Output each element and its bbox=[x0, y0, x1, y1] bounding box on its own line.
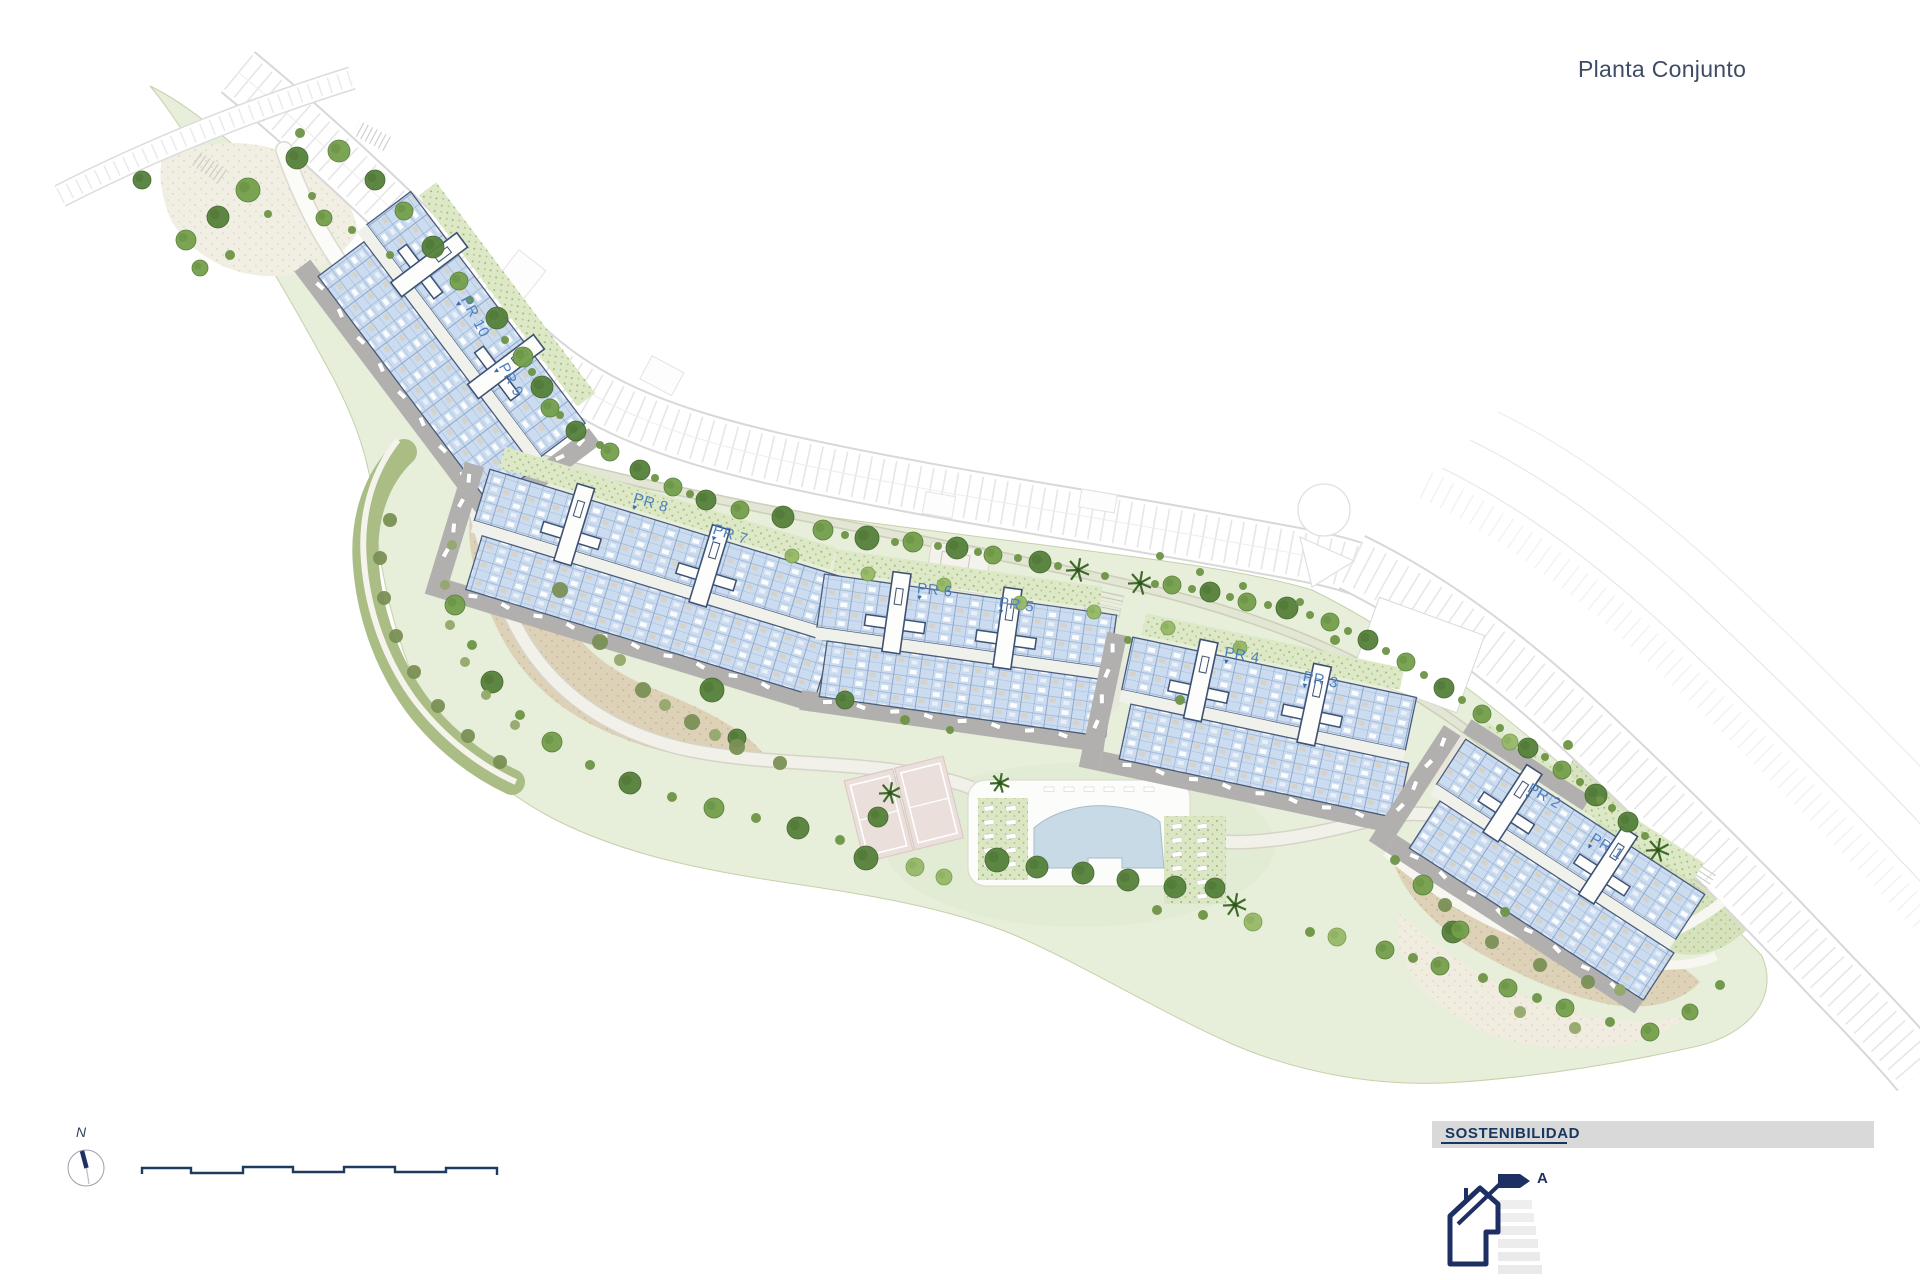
tree-icon bbox=[1569, 1022, 1581, 1034]
tree-icon bbox=[934, 542, 942, 550]
tree-icon bbox=[461, 729, 475, 743]
tree-icon bbox=[1496, 724, 1504, 732]
tree-icon bbox=[1438, 898, 1452, 912]
tree-icon bbox=[389, 629, 403, 643]
tree-icon bbox=[729, 739, 745, 755]
tree-icon bbox=[1390, 855, 1400, 865]
tree-icon bbox=[481, 690, 491, 700]
tree-icon bbox=[1239, 582, 1247, 590]
tree-icon bbox=[447, 540, 457, 550]
tree-icon bbox=[684, 714, 700, 730]
tree-icon bbox=[1596, 796, 1604, 804]
tree-icon bbox=[1330, 635, 1340, 645]
tree-icon bbox=[1124, 636, 1132, 644]
tree-icon bbox=[1533, 958, 1547, 972]
sheet-background: Planta Conjunto PR 10▾PR 9▾PR 8▾PR 7▾PR … bbox=[0, 0, 1920, 1280]
roundabout bbox=[1298, 484, 1350, 536]
tree-icon bbox=[1296, 598, 1304, 606]
north-compass bbox=[68, 1150, 104, 1186]
tree-icon bbox=[1485, 935, 1499, 949]
tree-icon bbox=[295, 128, 305, 138]
tree-icon bbox=[510, 720, 520, 730]
building-label: PR 6▾ bbox=[916, 580, 953, 601]
tree-icon bbox=[1198, 910, 1208, 920]
tree-icon bbox=[592, 634, 608, 650]
rating-arrow bbox=[1498, 1174, 1530, 1188]
tree-icon bbox=[1641, 832, 1649, 840]
tree-icon bbox=[773, 756, 787, 770]
tree-icon bbox=[1420, 671, 1428, 679]
tree-icon bbox=[946, 726, 954, 734]
tree-icon bbox=[1226, 593, 1234, 601]
tree-icon bbox=[1152, 905, 1162, 915]
tree-icon bbox=[1478, 973, 1488, 983]
tree-icon bbox=[493, 755, 507, 769]
tree-icon bbox=[1054, 562, 1062, 570]
tree-icon bbox=[501, 336, 509, 344]
tree-icon bbox=[635, 682, 651, 698]
tree-icon bbox=[651, 474, 659, 482]
tree-icon bbox=[467, 640, 477, 650]
energy-rating-letter: A bbox=[1537, 1170, 1548, 1187]
tree-icon bbox=[614, 654, 626, 666]
tree-icon bbox=[1605, 1017, 1615, 1027]
sustainability-underline bbox=[1441, 1142, 1567, 1144]
house-icon bbox=[1450, 1188, 1498, 1264]
tree-icon bbox=[348, 226, 356, 234]
tree-icon bbox=[1188, 585, 1196, 593]
tree-icon bbox=[373, 551, 387, 565]
tree-icon bbox=[659, 699, 671, 711]
tree-icon bbox=[751, 813, 761, 823]
site-plan bbox=[0, 0, 1920, 1280]
tree-icon bbox=[386, 251, 394, 259]
tree-icon bbox=[974, 548, 982, 556]
tree-icon bbox=[515, 710, 525, 720]
tree-icon bbox=[1408, 953, 1418, 963]
tree-icon bbox=[1175, 695, 1185, 705]
tree-icon bbox=[1581, 975, 1595, 989]
tree-icon bbox=[1563, 740, 1573, 750]
tree-icon bbox=[1614, 984, 1626, 996]
tree-icon bbox=[1305, 927, 1315, 937]
tree-icon bbox=[900, 715, 910, 725]
tree-icon bbox=[528, 368, 536, 376]
tree-icon bbox=[1382, 647, 1390, 655]
tree-icon bbox=[1014, 554, 1022, 562]
energy-rating-icon bbox=[1450, 1174, 1542, 1274]
tree-icon bbox=[1500, 907, 1510, 917]
tree-icon bbox=[445, 620, 455, 630]
north-label: N bbox=[76, 1124, 86, 1140]
tree-icon bbox=[431, 699, 445, 713]
tree-icon bbox=[891, 538, 899, 546]
tree-icon bbox=[667, 792, 677, 802]
tree-icon bbox=[377, 591, 391, 605]
tree-icon bbox=[1532, 993, 1542, 1003]
tree-icon bbox=[552, 582, 568, 598]
tree-icon bbox=[383, 513, 397, 527]
tree-icon bbox=[556, 411, 564, 419]
tree-icon bbox=[1458, 696, 1466, 704]
tree-icon bbox=[1151, 580, 1159, 588]
tree-icon bbox=[585, 760, 595, 770]
energy-scale-bars bbox=[1498, 1200, 1542, 1274]
tree-icon bbox=[835, 835, 845, 845]
building-label: PR 5▾ bbox=[998, 594, 1036, 616]
tree-icon bbox=[1306, 611, 1314, 619]
tree-icon bbox=[841, 531, 849, 539]
tree-icon bbox=[407, 665, 421, 679]
tree-icon bbox=[1608, 804, 1616, 812]
tree-icon bbox=[596, 441, 604, 449]
tree-icon bbox=[1715, 980, 1725, 990]
tree-icon bbox=[1264, 601, 1272, 609]
tree-icon bbox=[709, 729, 721, 741]
tree-icon bbox=[1156, 552, 1164, 560]
tree-icon bbox=[686, 490, 694, 498]
tree-icon bbox=[1514, 1006, 1526, 1018]
tree-icon bbox=[1196, 568, 1204, 576]
tree-icon bbox=[1344, 627, 1352, 635]
tree-icon bbox=[264, 210, 272, 218]
tree-icon bbox=[440, 580, 450, 590]
tree-icon bbox=[308, 192, 316, 200]
section-profile-line bbox=[142, 1167, 497, 1175]
tree-icon bbox=[225, 250, 235, 260]
page-title: Planta Conjunto bbox=[1578, 56, 1746, 83]
tree-icon bbox=[1101, 572, 1109, 580]
tree-icon bbox=[1576, 778, 1584, 786]
tree-icon bbox=[1541, 753, 1549, 761]
tree-icon bbox=[460, 657, 470, 667]
